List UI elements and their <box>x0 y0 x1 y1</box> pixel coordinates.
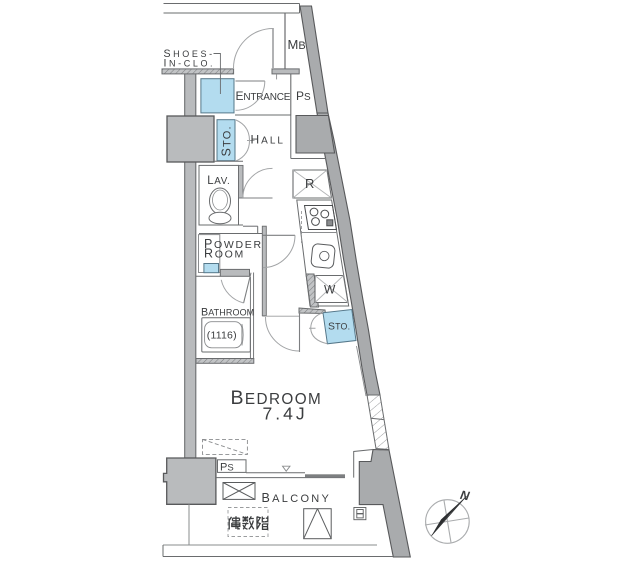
svg-text:PS: PS <box>296 89 311 103</box>
svg-text:BALCONY: BALCONY <box>262 491 332 505</box>
svg-text:LAV.: LAV. <box>207 175 230 187</box>
svg-text:7.4J: 7.4J <box>263 404 308 424</box>
svg-text:STO.: STO. <box>328 322 350 333</box>
svg-text:STO.: STO. <box>220 125 234 156</box>
svg-text:MB: MB <box>288 37 306 52</box>
svg-text:R: R <box>305 176 314 191</box>
svg-text:ROOM: ROOM <box>204 247 245 261</box>
svg-text:HALL: HALL <box>251 133 285 147</box>
svg-text:PS: PS <box>220 462 234 474</box>
svg-text:BATHROOM: BATHROOM <box>201 307 254 319</box>
svg-text:W: W <box>324 283 336 297</box>
svg-text:IN-CLO.: IN-CLO. <box>164 58 216 70</box>
svg-text:(1116): (1116) <box>207 329 237 341</box>
